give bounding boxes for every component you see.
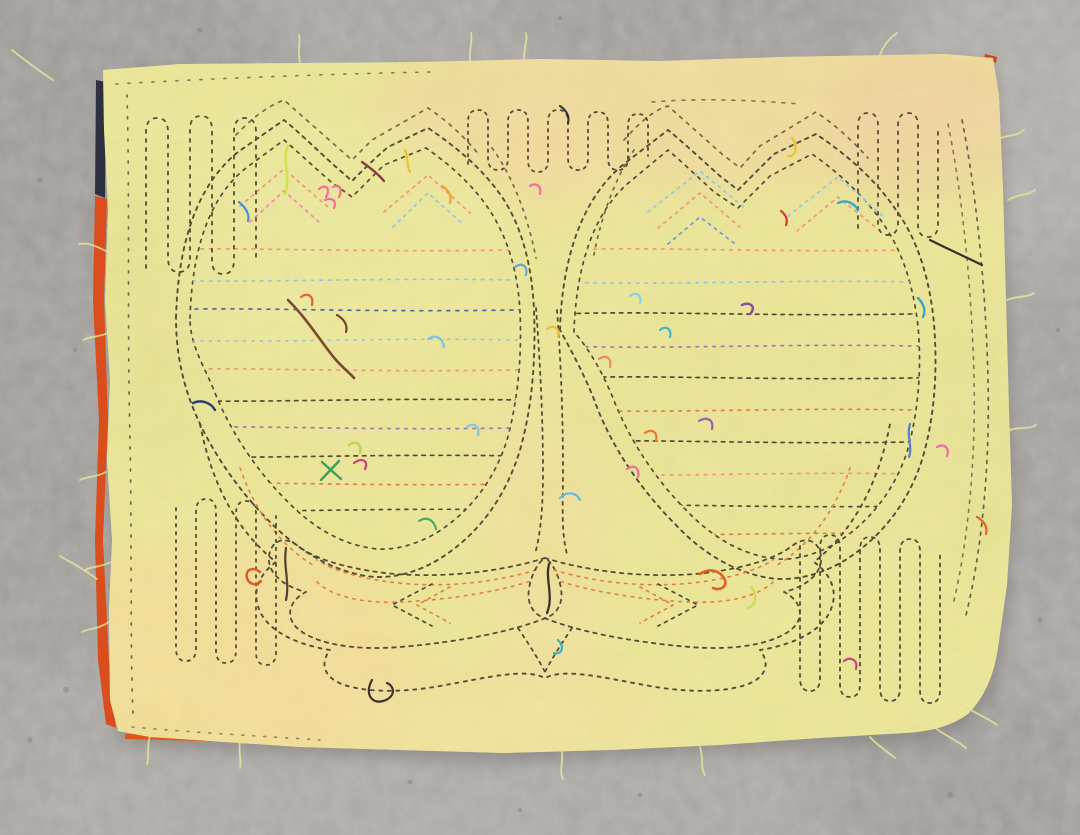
concrete-speckle	[198, 28, 203, 33]
fiber	[239, 742, 240, 768]
concrete-speckle	[73, 348, 77, 352]
fiber	[299, 35, 300, 62]
concrete-speckle	[558, 16, 562, 20]
concrete-speckle	[638, 793, 643, 798]
concrete-speckle	[947, 792, 953, 798]
photo-of-mola-textile-back	[0, 0, 1080, 835]
concrete-speckle	[408, 780, 413, 785]
concrete-speckle	[1056, 328, 1060, 332]
fabric-panel	[35, 28, 1045, 770]
concrete-speckle	[38, 178, 43, 183]
fabric-shading	[35, 28, 1045, 770]
concrete-speckle	[27, 737, 32, 742]
scene	[0, 0, 1080, 835]
concrete-speckle	[518, 808, 522, 812]
concrete-speckle	[63, 687, 69, 693]
concrete-speckle	[1038, 618, 1043, 623]
loose-thread	[909, 424, 911, 457]
